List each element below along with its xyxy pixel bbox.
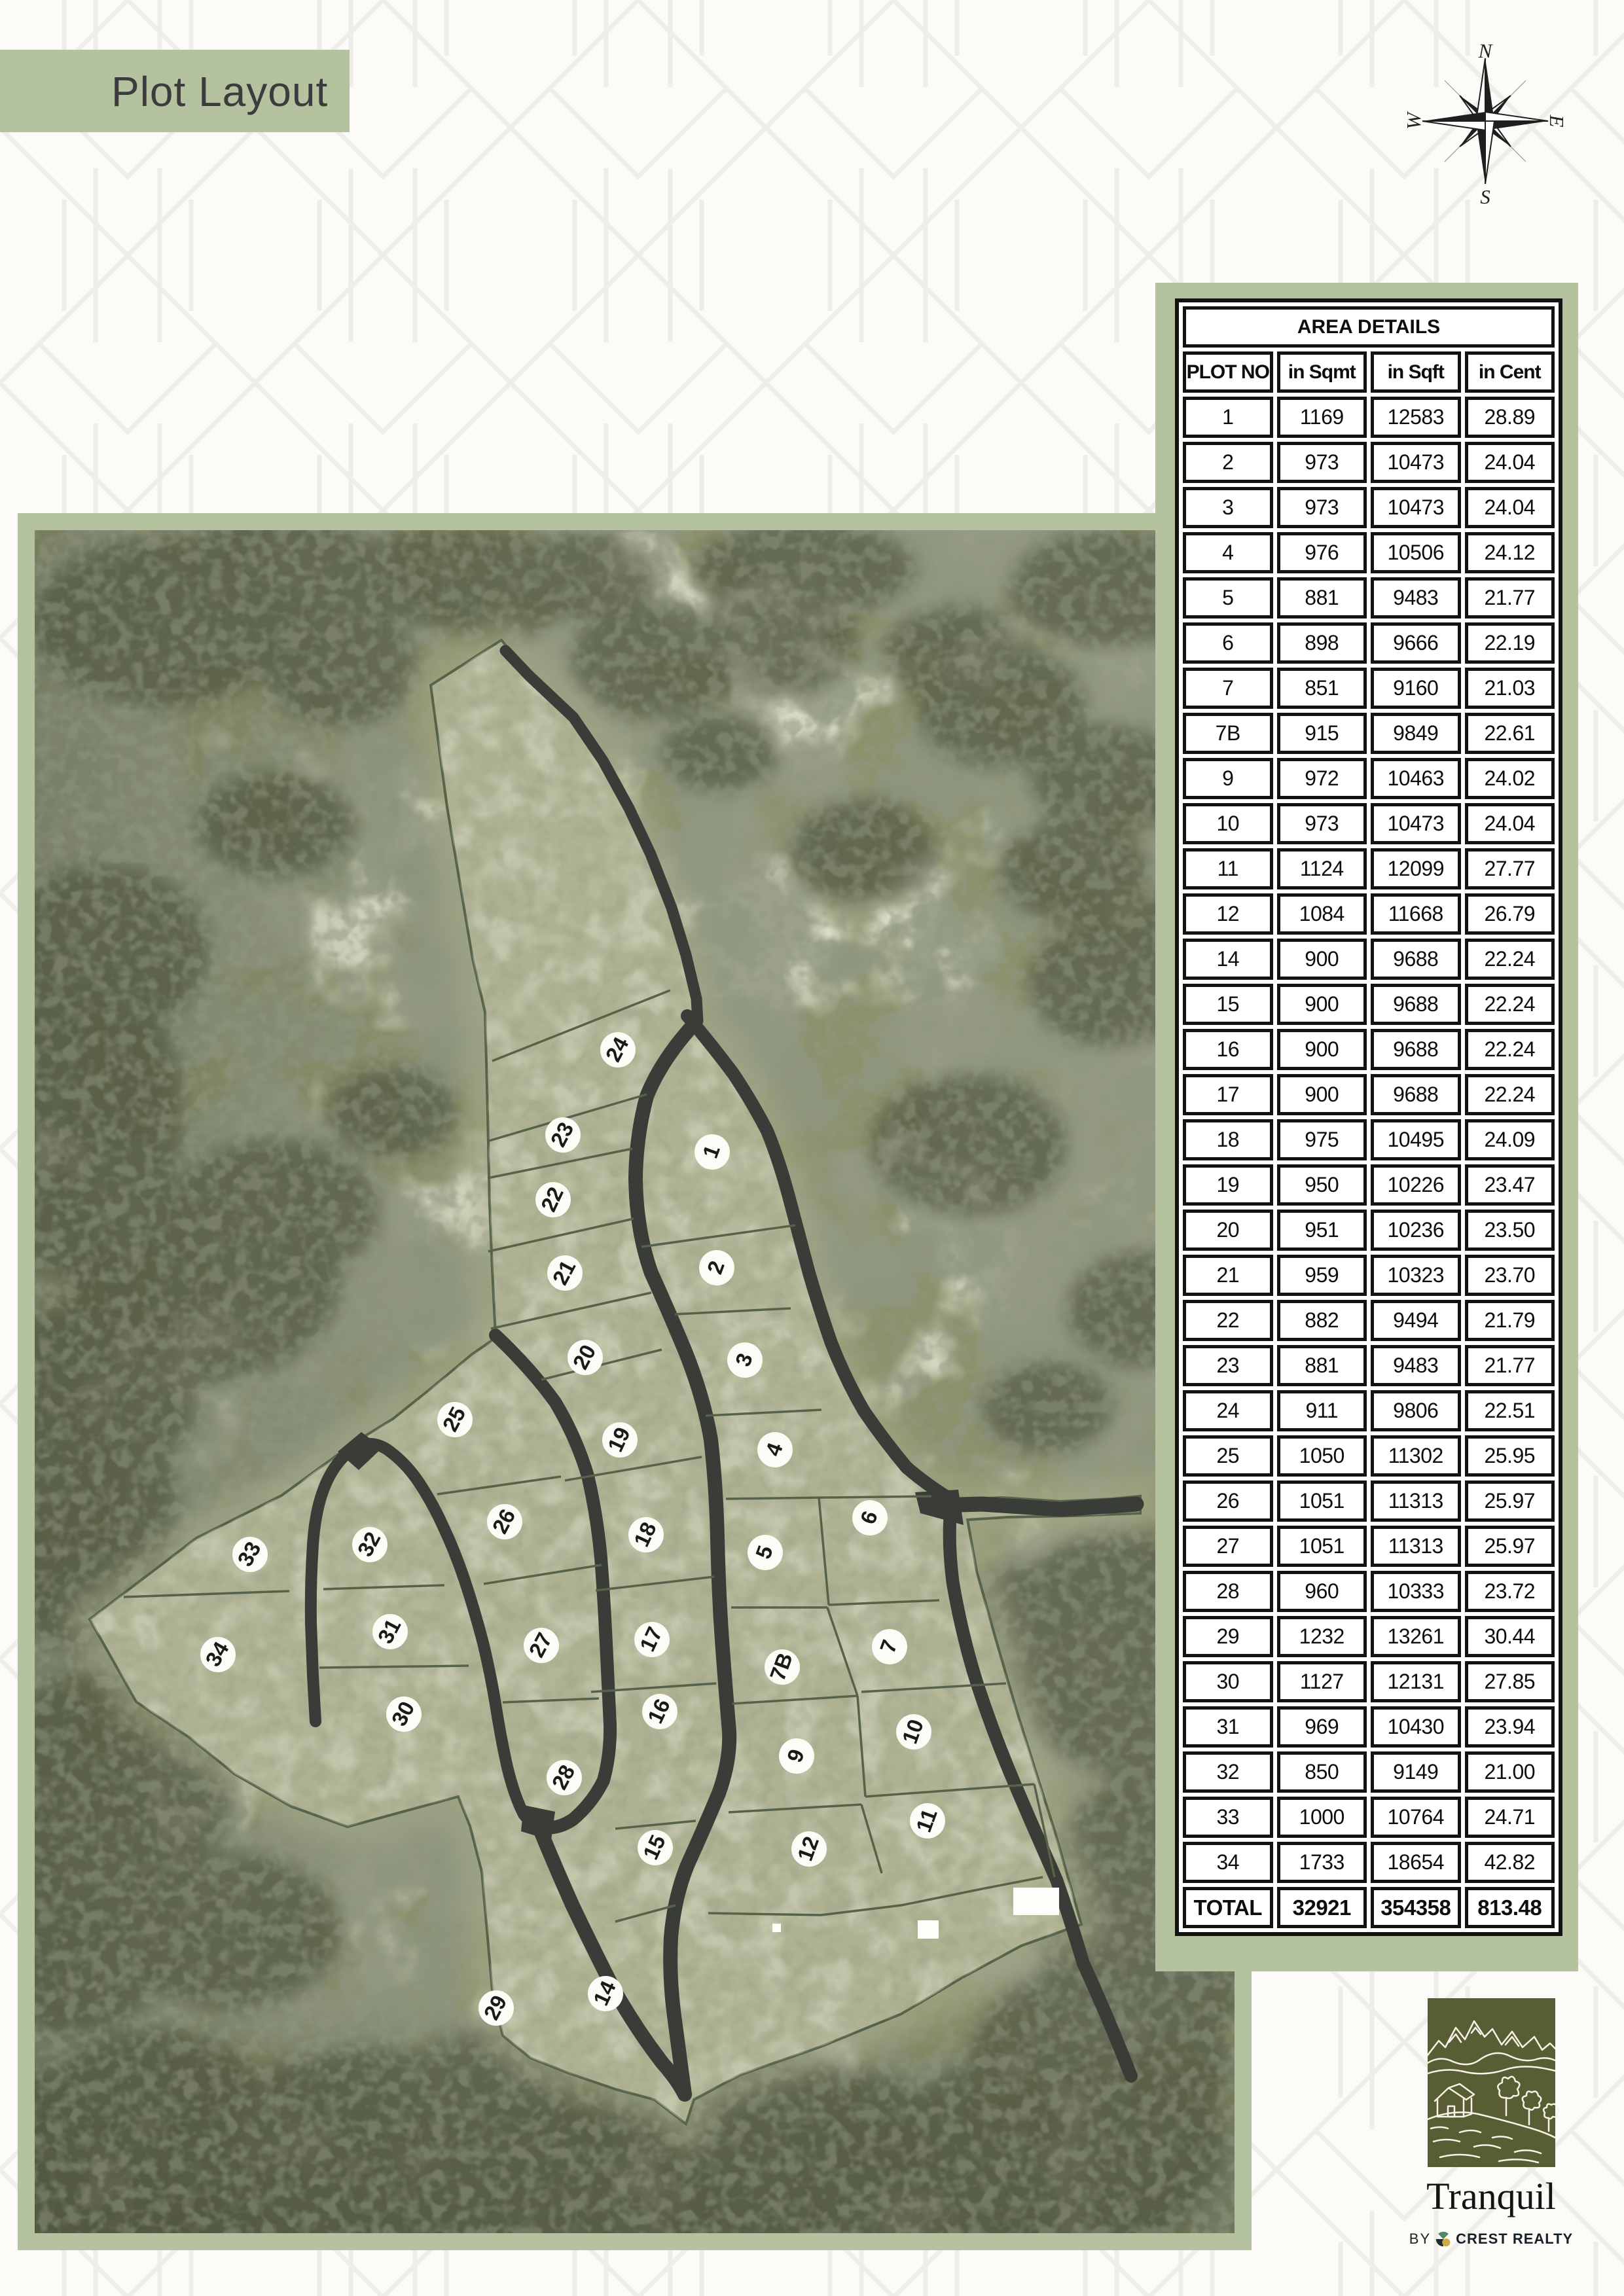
- svg-text:W: W: [1402, 111, 1425, 130]
- svg-text:N: N: [1478, 39, 1494, 62]
- svg-text:S: S: [1480, 185, 1490, 208]
- svg-text:E: E: [1545, 115, 1568, 128]
